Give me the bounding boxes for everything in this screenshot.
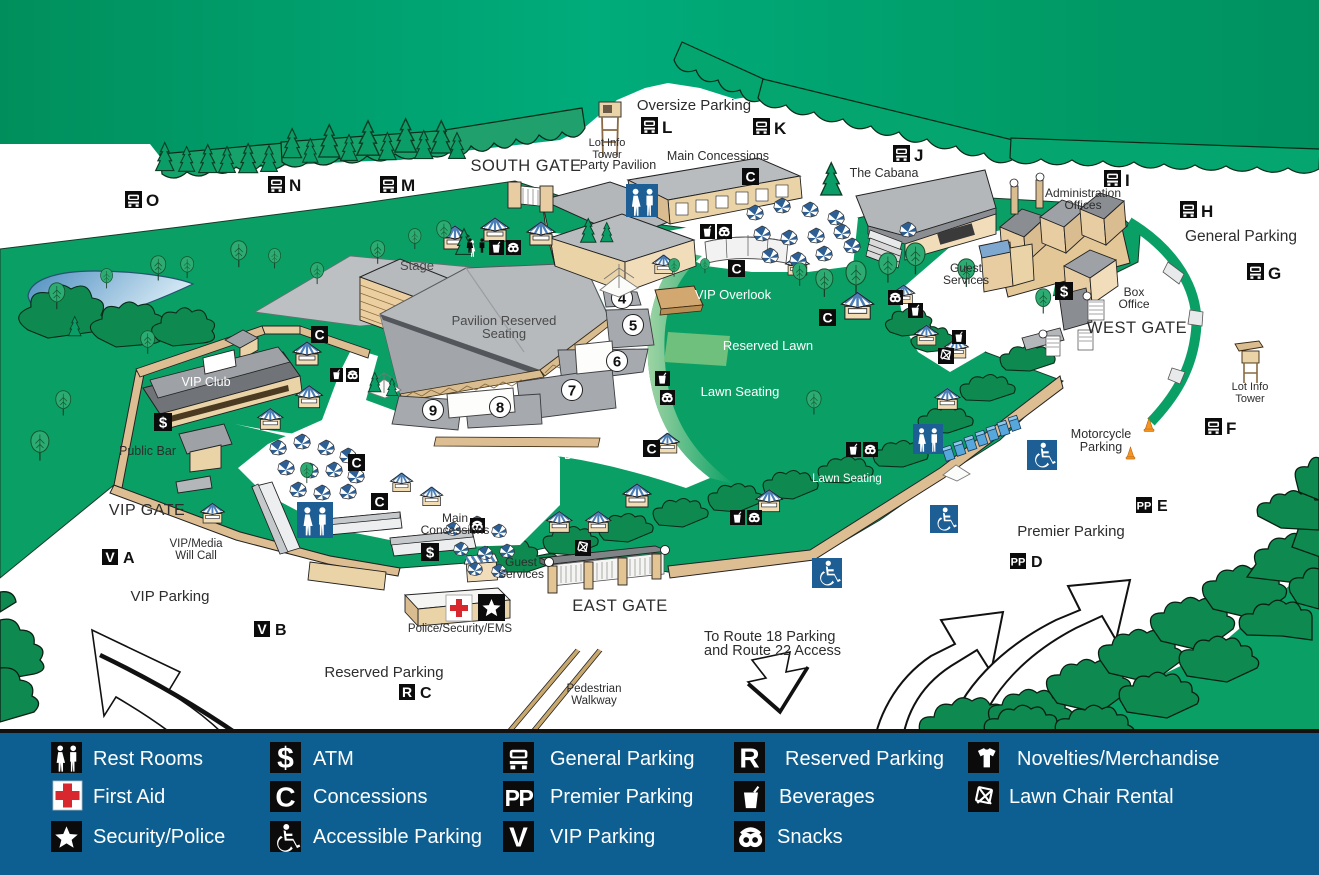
svg-text:Seating: Seating bbox=[482, 326, 526, 341]
svg-text:Lawn Seating: Lawn Seating bbox=[812, 473, 882, 485]
svg-text:RE/MAX Select Party Deck: RE/MAX Select Party Deck bbox=[452, 450, 591, 462]
svg-text:C: C bbox=[646, 441, 656, 457]
svg-text:I: I bbox=[1125, 171, 1130, 190]
svg-text:Accessible Parking: Accessible Parking bbox=[313, 826, 482, 848]
svg-text:Pedestrian: Pedestrian bbox=[567, 683, 622, 695]
svg-text:Reserved Parking: Reserved Parking bbox=[324, 664, 443, 681]
svg-text:Main Concessions: Main Concessions bbox=[667, 149, 769, 163]
svg-text:First Aid: First Aid bbox=[93, 786, 165, 808]
svg-text:Motorcycle: Motorcycle bbox=[1071, 427, 1131, 441]
svg-text:R: R bbox=[739, 743, 759, 774]
svg-text:R: R bbox=[402, 684, 412, 700]
svg-text:C: C bbox=[351, 455, 361, 471]
svg-text:N: N bbox=[289, 176, 301, 195]
svg-text:Lot Info: Lot Info bbox=[589, 137, 626, 149]
svg-text:J: J bbox=[914, 146, 923, 165]
svg-text:K: K bbox=[774, 119, 787, 138]
svg-text:Security/Police: Security/Police bbox=[93, 826, 225, 848]
svg-text:H: H bbox=[1201, 202, 1213, 221]
svg-text:Snacks: Snacks bbox=[777, 826, 843, 848]
svg-text:5: 5 bbox=[629, 318, 637, 335]
svg-text:V: V bbox=[257, 621, 267, 637]
svg-text:Oversize Parking: Oversize Parking bbox=[637, 97, 751, 114]
svg-text:6: 6 bbox=[613, 354, 621, 371]
svg-text:C: C bbox=[314, 327, 324, 343]
svg-text:Premier Parking: Premier Parking bbox=[1017, 523, 1125, 540]
svg-text:PP: PP bbox=[1011, 557, 1026, 569]
svg-text:Stage: Stage bbox=[400, 258, 434, 273]
svg-text:D: D bbox=[1031, 554, 1043, 571]
svg-text:C: C bbox=[374, 494, 384, 510]
svg-text:VIP GATE: VIP GATE bbox=[109, 502, 185, 519]
svg-text:F: F bbox=[1226, 419, 1236, 438]
svg-text:Parking: Parking bbox=[1080, 440, 1122, 454]
svg-text:C: C bbox=[420, 685, 432, 702]
svg-text:$: $ bbox=[159, 415, 168, 432]
svg-text:General Parking: General Parking bbox=[1185, 228, 1297, 245]
svg-text:Will Call: Will Call bbox=[175, 550, 217, 562]
svg-text:PP: PP bbox=[505, 785, 534, 811]
svg-text:Lawn Chair Rental: Lawn Chair Rental bbox=[1009, 786, 1174, 808]
svg-text:V: V bbox=[105, 549, 115, 565]
svg-text:Party Pavilion: Party Pavilion bbox=[580, 158, 656, 172]
svg-text:Lawn Seating: Lawn Seating bbox=[701, 384, 780, 399]
svg-text:Police/Security/EMS: Police/Security/EMS bbox=[408, 623, 513, 635]
svg-text:C: C bbox=[731, 261, 741, 277]
svg-text:Reserved Lawn: Reserved Lawn bbox=[723, 338, 813, 353]
svg-text:V: V bbox=[509, 822, 528, 853]
svg-text:Offices: Offices bbox=[1064, 198, 1101, 212]
svg-text:9: 9 bbox=[429, 403, 437, 420]
svg-text:C: C bbox=[745, 169, 755, 185]
svg-text:VIP Overlook: VIP Overlook bbox=[695, 287, 772, 302]
svg-text:Walkway: Walkway bbox=[571, 695, 617, 707]
svg-text:8: 8 bbox=[496, 400, 504, 417]
svg-text:PP: PP bbox=[1137, 501, 1152, 513]
svg-text:Rest Rooms: Rest Rooms bbox=[93, 748, 203, 770]
svg-text:Premier Parking: Premier Parking bbox=[550, 786, 693, 808]
svg-text:VIP Club: VIP Club bbox=[181, 375, 230, 389]
svg-text:EAST GATE: EAST GATE bbox=[572, 597, 668, 615]
svg-text:Concessions: Concessions bbox=[421, 523, 490, 537]
svg-text:Tower: Tower bbox=[1235, 393, 1265, 405]
svg-text:O: O bbox=[146, 191, 159, 210]
svg-text:$: $ bbox=[277, 742, 294, 775]
svg-text:E: E bbox=[1157, 498, 1168, 515]
svg-text:B: B bbox=[275, 622, 287, 639]
svg-text:The Cabana: The Cabana bbox=[850, 166, 919, 180]
svg-text:Public Bar: Public Bar bbox=[119, 444, 176, 458]
svg-text:$: $ bbox=[1060, 284, 1069, 301]
svg-text:VIP/Media: VIP/Media bbox=[169, 538, 223, 550]
svg-text:Office: Office bbox=[1118, 297, 1149, 311]
svg-text:General Parking: General Parking bbox=[550, 748, 695, 770]
svg-text:Services: Services bbox=[943, 273, 989, 287]
svg-text:VIP Parking: VIP Parking bbox=[131, 588, 210, 605]
svg-text:M: M bbox=[401, 176, 415, 195]
svg-text:WEST GATE: WEST GATE bbox=[1087, 319, 1187, 337]
svg-text:Concessions: Concessions bbox=[313, 786, 428, 808]
svg-text:SOUTH GATE: SOUTH GATE bbox=[470, 157, 581, 175]
svg-text:C: C bbox=[275, 782, 295, 813]
svg-text:G: G bbox=[1268, 264, 1281, 283]
svg-text:$: $ bbox=[426, 545, 435, 562]
svg-text:L: L bbox=[662, 118, 672, 137]
svg-text:C: C bbox=[822, 310, 832, 326]
svg-text:ATM: ATM bbox=[313, 748, 354, 770]
svg-text:Services: Services bbox=[498, 567, 544, 581]
svg-text:A: A bbox=[123, 550, 135, 567]
svg-text:Reserved Parking: Reserved Parking bbox=[785, 748, 944, 770]
svg-text:and Route 22 Access: and Route 22 Access bbox=[704, 643, 841, 659]
svg-text:VIP Parking: VIP Parking bbox=[550, 826, 655, 848]
svg-text:Novelties/Merchandise: Novelties/Merchandise bbox=[1017, 748, 1219, 770]
svg-text:Lot Info: Lot Info bbox=[1232, 381, 1269, 393]
svg-text:Beverages: Beverages bbox=[779, 786, 875, 808]
svg-text:7: 7 bbox=[568, 383, 576, 400]
